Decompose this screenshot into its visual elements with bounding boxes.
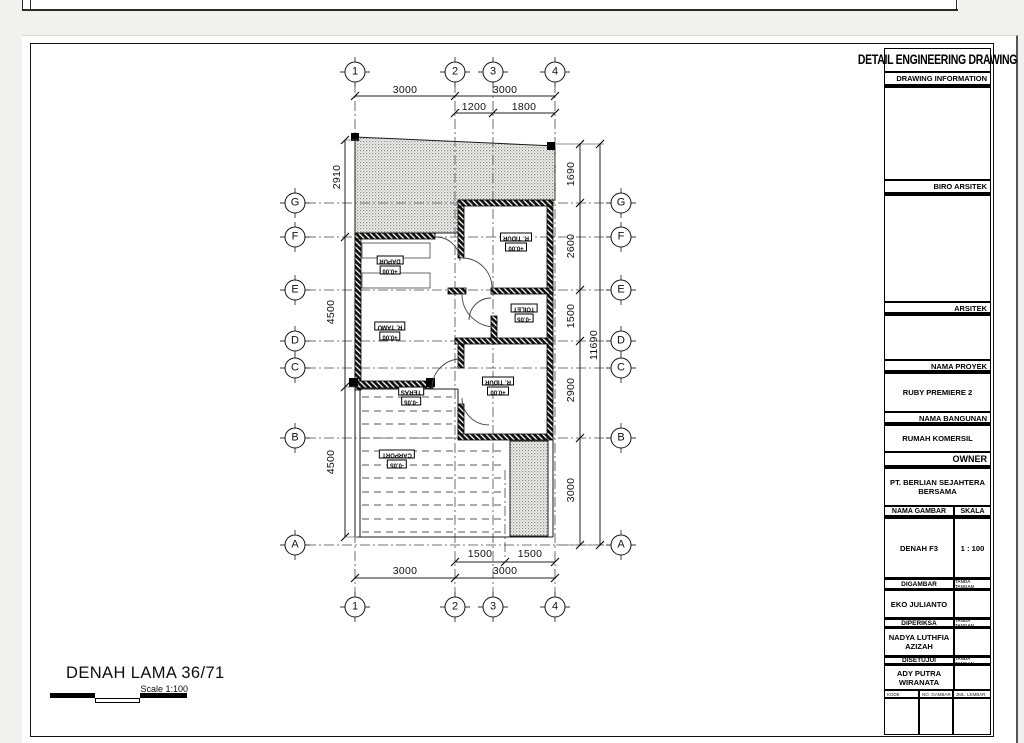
kode-gambar-box (884, 698, 919, 735)
room-level: -0.05 (401, 397, 421, 406)
grid-bubble-row: C (285, 358, 306, 379)
section-drawing-information: DRAWING INFORMATION (884, 72, 991, 87)
dim-label: 3000 (565, 478, 577, 503)
door-swing-arcs (432, 237, 495, 425)
section-diperiksa: DIPERIKSA (884, 618, 954, 628)
dim-label: 1800 (512, 101, 537, 113)
room-name: R. TAMU (375, 322, 406, 331)
section-biro-arsitek: BIRO ARSITEK (884, 180, 991, 195)
grid-bubble-row: C (611, 358, 632, 379)
grid-bubble-col: 2 (445, 62, 466, 83)
grid-bubble-row: E (611, 280, 632, 301)
section-owner: OWNER (884, 452, 991, 468)
dim-label: 3000 (393, 565, 418, 577)
digambar-value: EKO JULIANTO (884, 590, 954, 618)
title-block-header-text: DETAIL ENGINEERING DRAWING (858, 52, 1017, 68)
grid-bubble-col: 3 (483, 62, 504, 83)
dim-label: 1690 (565, 162, 577, 187)
title-block-header: DETAIL ENGINEERING DRAWING (884, 48, 991, 72)
grid-bubble-row: F (285, 227, 306, 248)
dim-label: 2900 (565, 378, 577, 403)
room-level: +0.00 (379, 266, 400, 275)
section-nama-gambar: NAMA GAMBAR (884, 506, 954, 518)
grid-bubble-row: D (285, 331, 306, 352)
dim-label: 4500 (325, 450, 337, 475)
nama-proyek-value: RUBY PREMIERE 2 (884, 373, 991, 412)
nama-bangunan-value: RUMAH KOMERSIL (884, 425, 991, 452)
room-label-toilet: -0.05 TOILET (510, 304, 537, 323)
jml-lembar-header: JML. LEMBAR (953, 690, 991, 698)
section-nama-bangunan: NAMA BANGUNAN (884, 412, 991, 425)
room-label-dapur: +0.00 DAPUR (376, 256, 403, 275)
grid-bubble-row: G (611, 193, 632, 214)
digambar-signature-box (954, 590, 991, 618)
owner-value: PT. BERLIAN SEJAHTERA BERSAMA (884, 468, 991, 506)
no-gambar-box (919, 698, 953, 735)
arsitek-box (884, 315, 991, 360)
screenshot-stage: 3000 3000 1200 1800 1500 1500 3000 3000 … (0, 0, 1024, 743)
room-name: DAPUR (376, 256, 403, 265)
kode-gambar-header: KODE GAMBAR (884, 690, 919, 698)
dim-label-total: 11690 (588, 330, 600, 360)
disetujui-value: ADY PUTRA WIRANATA (884, 665, 954, 690)
room-name: TERAS (398, 387, 424, 396)
grid-bubble-row: E (285, 280, 306, 301)
disetujui-signature-box (954, 665, 991, 690)
grid-bubble-row: D (611, 331, 632, 352)
room-level: +0.00 (379, 332, 400, 341)
no-gambar-header: NO. GAMBAR (919, 690, 953, 698)
scale-bar-segment (95, 698, 140, 703)
room-label-teras: -0.05 TERAS (398, 387, 424, 406)
grid-bubble-row: A (285, 535, 306, 556)
grid-bubble-row: B (285, 428, 306, 449)
dim-label: 1500 (468, 548, 493, 560)
tanda-tangan-header: TANDA TANGAN (954, 578, 991, 590)
title-block: DETAIL ENGINEERING DRAWING DRAWING INFOR… (884, 48, 991, 735)
room-label-r-tidur-1: +0.00 R. TIDUR (500, 233, 532, 252)
drawing-information-box (884, 87, 991, 180)
section-arsitek: ARSITEK (884, 302, 991, 315)
grid-bubble-col: 4 (545, 62, 566, 83)
section-digambar: DIGAMBAR (884, 578, 954, 590)
section-nama-proyek: NAMA PROYEK (884, 360, 991, 373)
tanda-tangan-header: TANDA TANGAN (954, 618, 991, 628)
room-level: +0.00 (505, 243, 526, 252)
room-name: CARPORT (379, 450, 415, 459)
dim-label: 3000 (493, 565, 518, 577)
room-level: -0.05 (387, 460, 407, 469)
room-level: -0.05 (514, 314, 534, 323)
tanda-tangan-header: TANDA TANGAN (954, 656, 991, 665)
grid-bubble-row: G (285, 193, 306, 214)
diperiksa-value: NADYA LUTHFIA AZIZAH (884, 628, 954, 656)
scale-bar-segment (50, 693, 95, 698)
grid-bubble-row: A (611, 535, 632, 556)
dim-label: 2910 (331, 165, 343, 190)
room-name: TOILET (510, 304, 537, 313)
grid-bubble-row: F (611, 227, 632, 248)
jml-lembar-box (953, 698, 991, 735)
scale-bar-segment (140, 693, 187, 698)
grid-bubble-col: 1 (345, 62, 366, 83)
biro-arsitek-box (884, 195, 991, 302)
dim-label: 1500 (518, 548, 543, 560)
dim-label: 2600 (565, 234, 577, 259)
room-name: R. TIDUR (500, 233, 532, 242)
grid-bubble-col: 3 (483, 597, 504, 618)
room-level: +0.00 (487, 387, 508, 396)
dim-label: 4500 (325, 300, 337, 325)
section-skala: SKALA (954, 506, 991, 518)
room-label-r-tidur-2: +0.00 R. TIDUR (482, 377, 514, 396)
room-label-carport: -0.05 CARPORT (379, 450, 415, 469)
grid-bubble-col: 1 (345, 597, 366, 618)
skala-value: 1 : 100 (954, 518, 991, 578)
grid-bubble-col: 4 (545, 597, 566, 618)
dim-label: 1500 (565, 304, 577, 329)
drawing-title: DENAH LAMA 36/71 (66, 664, 225, 683)
grid-bubble-row: B (611, 428, 632, 449)
diperiksa-signature-box (954, 628, 991, 656)
nama-gambar-value: DENAH F3 (884, 518, 954, 578)
room-label-r-tamu: +0.00 R. TAMU (375, 322, 406, 341)
dim-label: 1200 (462, 101, 487, 113)
grid-bubble-col: 2 (445, 597, 466, 618)
dim-label: 3000 (393, 84, 418, 96)
section-disetujui: DISETUJUI (884, 656, 954, 665)
room-name: R. TIDUR (482, 377, 514, 386)
dim-label: 3000 (493, 84, 518, 96)
